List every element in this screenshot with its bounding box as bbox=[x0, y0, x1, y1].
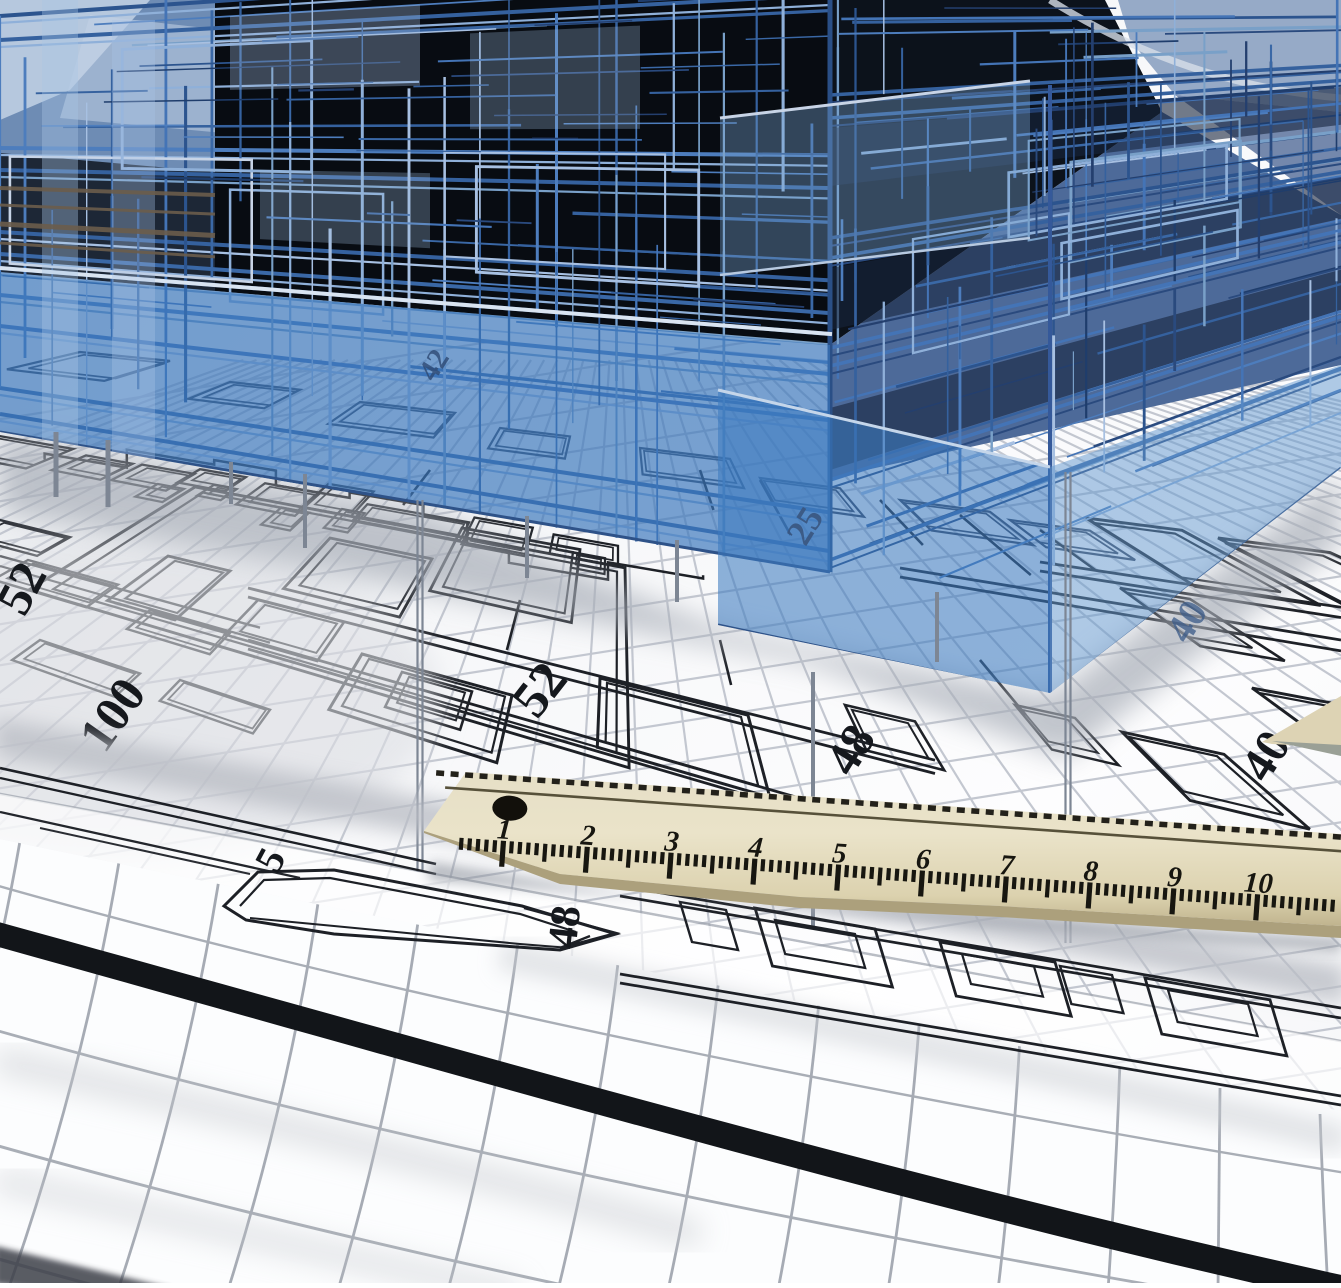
svg-text:48: 48 bbox=[540, 903, 590, 950]
